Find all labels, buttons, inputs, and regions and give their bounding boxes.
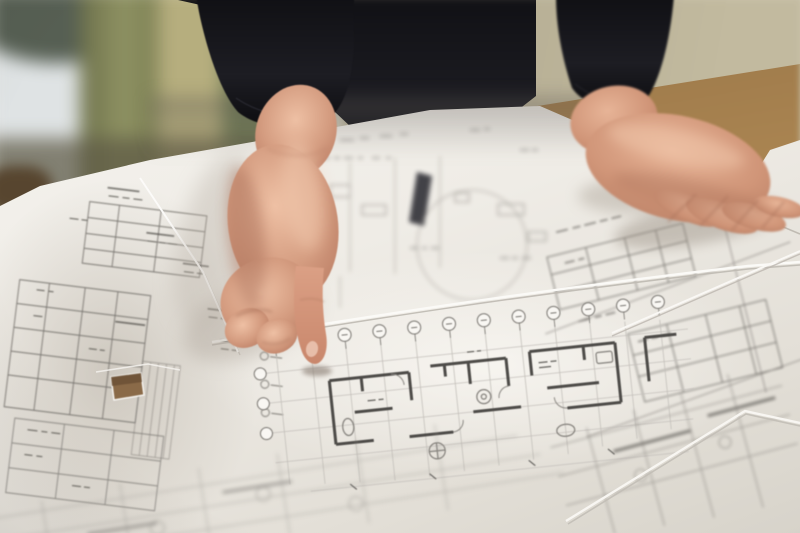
site-circle xyxy=(417,190,527,300)
plan-grid xyxy=(264,307,701,495)
resting-hand xyxy=(564,78,800,242)
pointing-hand xyxy=(209,74,349,364)
fingertip-shadow xyxy=(302,366,332,376)
blueprint-foreground-right xyxy=(544,361,800,533)
sheet-edge xyxy=(568,414,800,524)
photo-canvas xyxy=(0,0,800,533)
blueprint-and-hands-layer xyxy=(0,0,800,533)
sheet-edge xyxy=(612,251,800,333)
dark-bar-mark xyxy=(409,172,432,226)
schedule-table xyxy=(4,280,151,423)
door-arcs xyxy=(391,356,569,438)
table-gap-hole xyxy=(111,373,144,400)
schedule-table xyxy=(6,418,164,511)
sheet-edge xyxy=(566,411,800,521)
